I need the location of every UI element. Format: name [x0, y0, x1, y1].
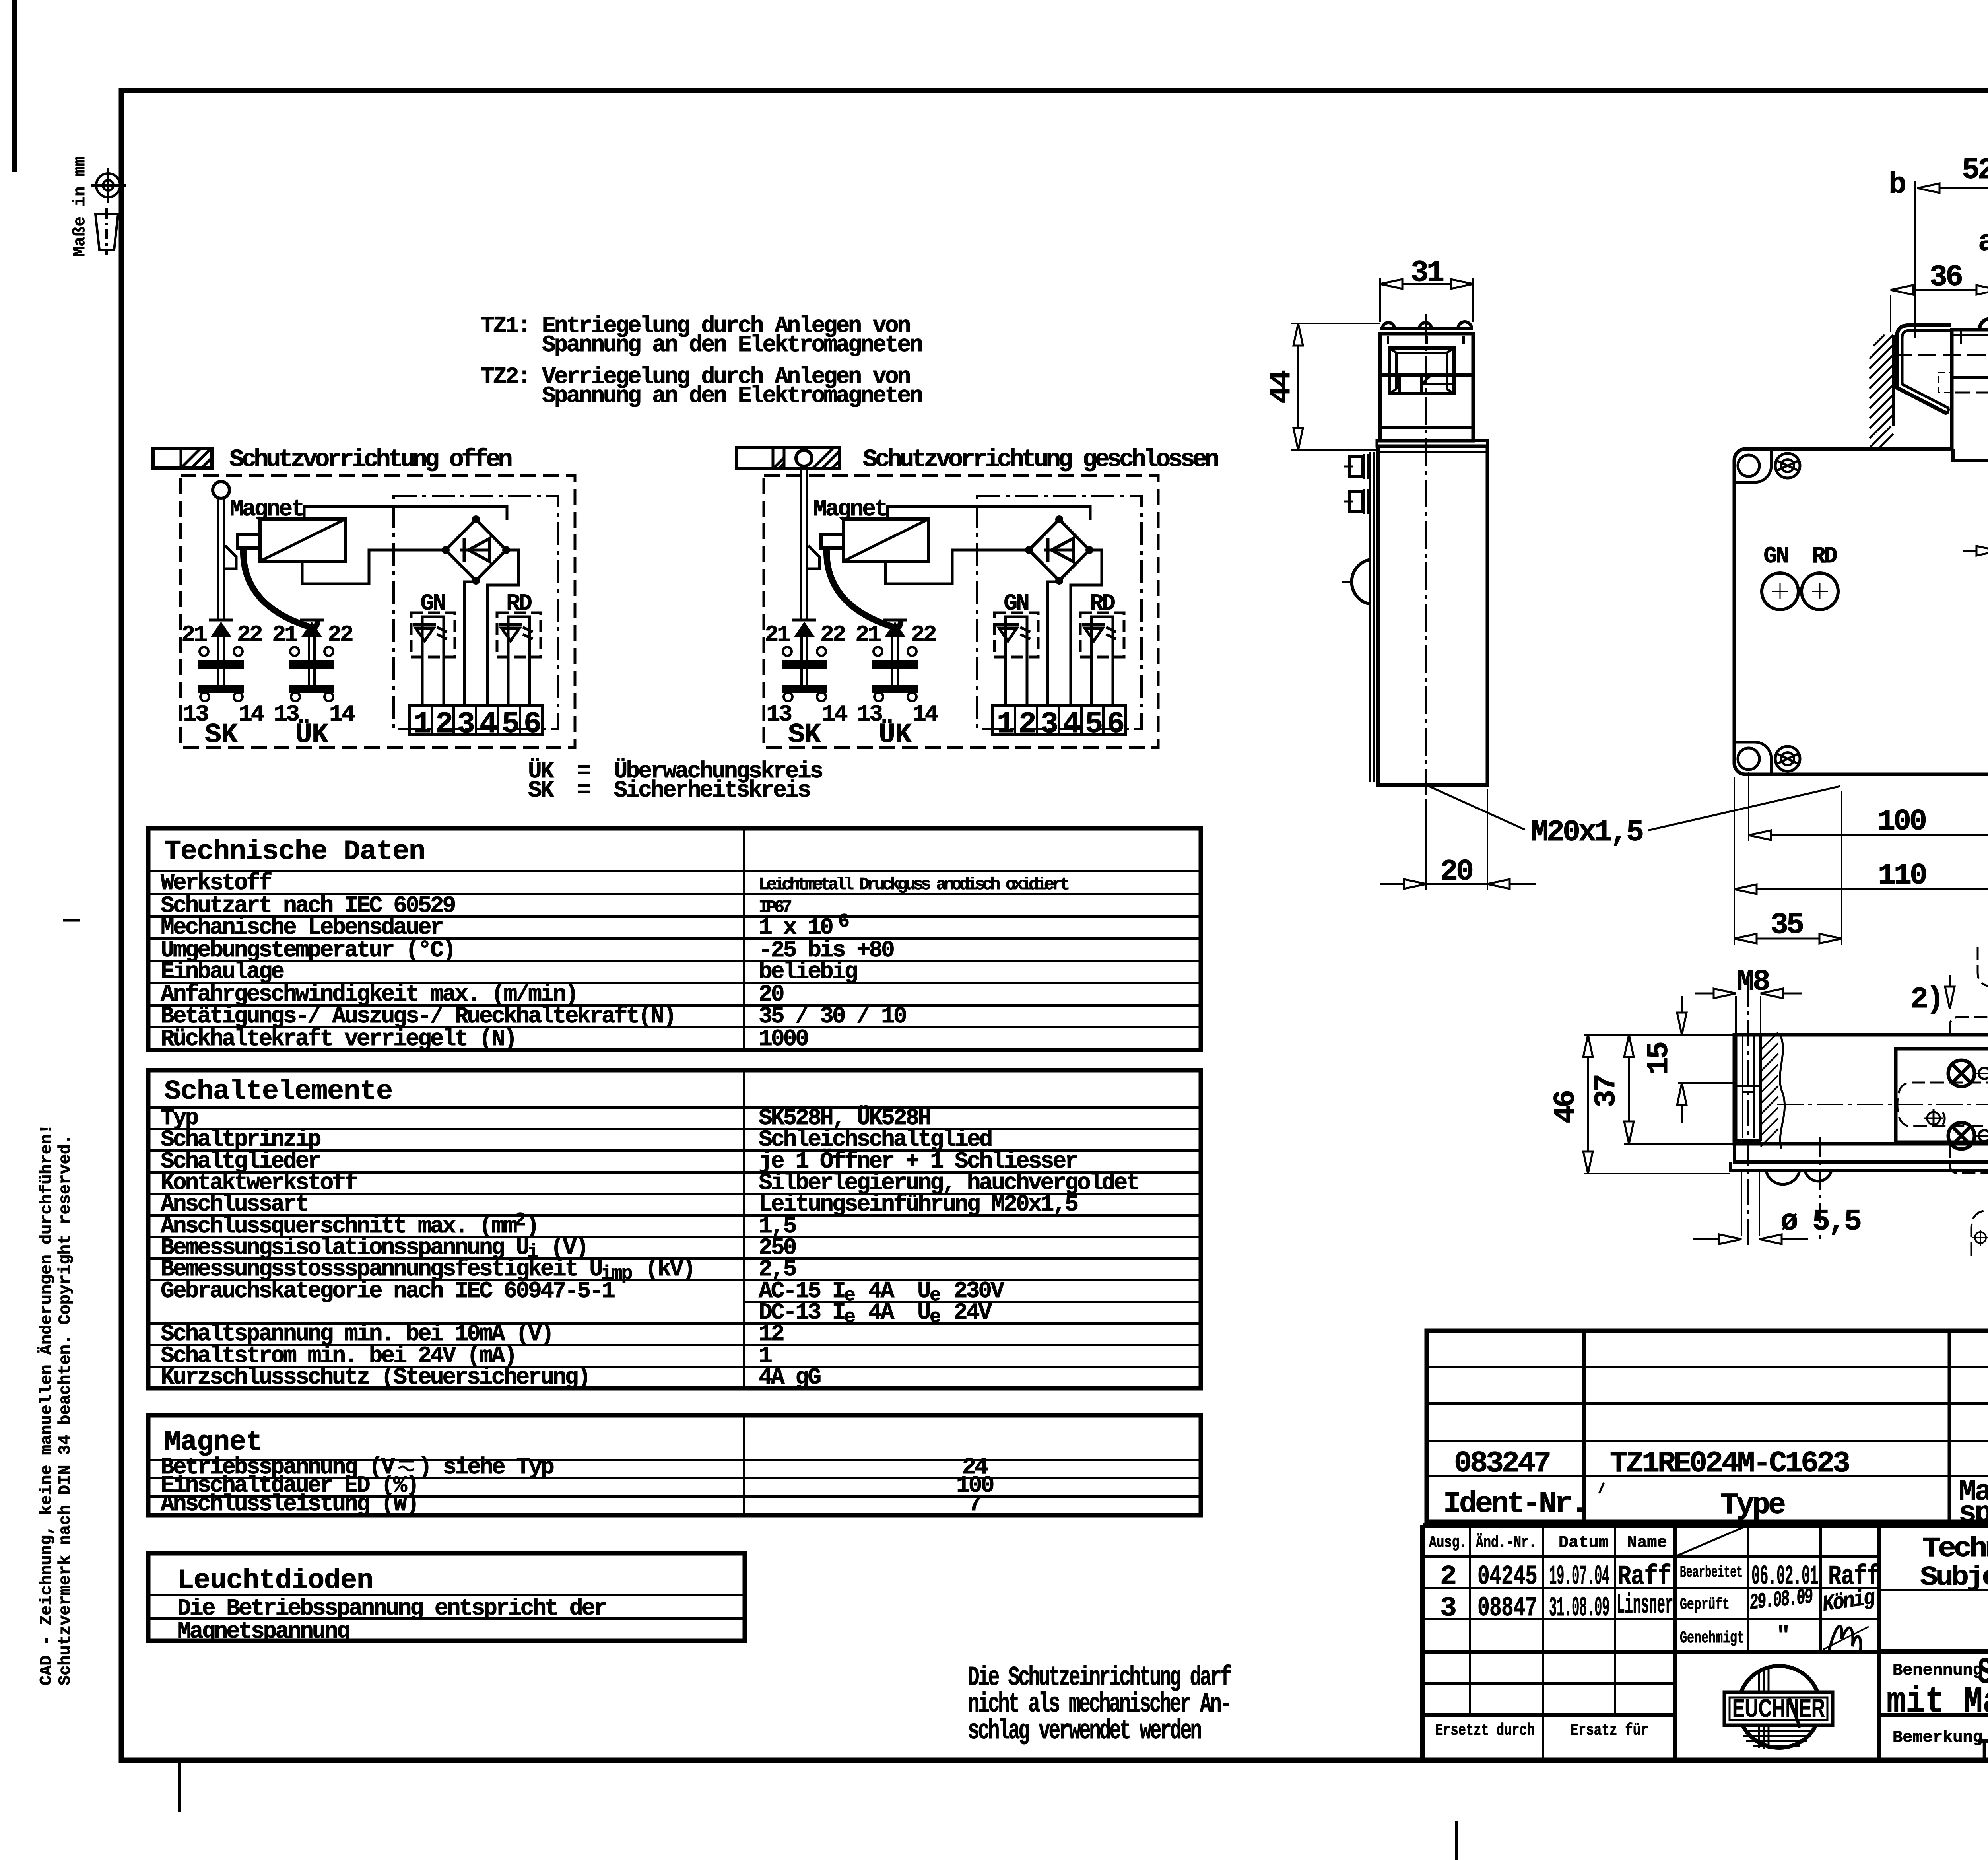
- svg-text:Type: Type: [1720, 1489, 1785, 1522]
- svg-text:M20x1,5: M20x1,5: [1531, 816, 1643, 849]
- svg-text:TZ.RE...M-C1623: TZ.RE...M-C1623: [1978, 1735, 1988, 1767]
- svg-text:46: 46: [1549, 1091, 1583, 1123]
- svg-text:Magnet: Magnet: [164, 1427, 262, 1458]
- svg-text:IP67: IP67: [759, 898, 791, 917]
- svg-text:52: 52: [1962, 154, 1988, 187]
- svg-text:SK = Sicherheitskreis: SK = Sicherheitskreis: [528, 778, 810, 804]
- svg-text:GN: GN: [1763, 544, 1788, 569]
- svg-text:3: 3: [1440, 1593, 1456, 1624]
- svg-text:1 x 10: 1 x 10: [759, 915, 833, 941]
- svg-text:Ident-Nr.: Ident-Nr.: [1443, 1487, 1586, 1521]
- svg-text:15: 15: [1642, 1042, 1676, 1075]
- svg-text:a: a: [1978, 225, 1988, 259]
- svg-text:RD: RD: [1811, 544, 1837, 569]
- svg-text:) siehe Typ: ) siehe Typ: [418, 1455, 554, 1481]
- svg-text:Gebrauchskategorie nach IEC 60: Gebrauchskategorie nach IEC 60947-5-1: [161, 1279, 615, 1304]
- svg-text:083247: 083247: [1454, 1447, 1549, 1481]
- svg-text:Datum: Datum: [1559, 1533, 1609, 1552]
- svg-text:Ersetzt durch: Ersetzt durch: [1435, 1721, 1535, 1740]
- svg-text:Name: Name: [1627, 1533, 1667, 1552]
- svg-text:Leuchtdioden: Leuchtdioden: [177, 1565, 373, 1597]
- svg-text:e: e: [930, 1306, 940, 1328]
- svg-text:Benennung: Benennung: [1893, 1661, 1983, 1680]
- svg-text:Änd.-Nr.: Änd.-Nr.: [1476, 1533, 1536, 1552]
- svg-text:4A U: 4A U: [856, 1300, 930, 1326]
- svg-text:2: 2: [1440, 1561, 1456, 1593]
- svg-text:Spannung an den Elektromagnete: Spannung an den Elektromagneten: [542, 332, 922, 358]
- svg-text:Ausg.: Ausg.: [1429, 1533, 1467, 1552]
- svg-text:Schutzvorrichtung geschlossen: Schutzvorrichtung geschlossen: [863, 445, 1218, 474]
- svg-text:Genehmigt: Genehmigt: [1680, 1629, 1744, 1648]
- svg-text:Raff: Raff: [1617, 1561, 1671, 1593]
- svg-text:Anschlussleistung (W): Anschlussleistung (W): [161, 1492, 418, 1518]
- svg-text:e: e: [930, 1285, 940, 1306]
- svg-text:04245: 04245: [1477, 1561, 1537, 1593]
- svg-text:Subject to technical modificat: Subject to technical modifications: [1920, 1562, 1988, 1594]
- svg-text:Spannung an den Elektromagnete: Spannung an den Elektromagneten: [542, 383, 922, 409]
- svg-text:7: 7: [968, 1492, 980, 1518]
- svg-text:Technische Daten: Technische Daten: [164, 836, 425, 868]
- svg-text:37: 37: [1590, 1076, 1623, 1108]
- svg-text:Schaltelemente: Schaltelemente: [164, 1076, 392, 1108]
- svg-text:Magnetspannung: Magnetspannung: [177, 1619, 349, 1645]
- svg-text:100: 100: [1877, 805, 1926, 839]
- svg-text:CAD - Zeichnung, keine manuell: CAD - Zeichnung, keine manuellen Änderun…: [37, 1124, 56, 1685]
- svg-text:Werkstoff: Werkstoff: [161, 871, 271, 896]
- svg-text:2): 2): [1910, 983, 1942, 1016]
- svg-text:Bemerkung: Bemerkung: [1893, 1728, 1983, 1747]
- svg-text:schlag verwendet werden: schlag verwendet werden: [968, 1716, 1201, 1747]
- svg-text:Einbaulage: Einbaulage: [161, 959, 283, 985]
- svg-text:08847: 08847: [1477, 1593, 1537, 1624]
- svg-text:4A gG: 4A gG: [759, 1365, 820, 1391]
- svg-text:Mechanische Lebensdauer: Mechanische Lebensdauer: [161, 915, 443, 941]
- svg-text:Leichtmetall Druckguss anodisc: Leichtmetall Druckguss anodisch oxidiert: [759, 875, 1069, 895]
- svg-text:b: b: [1889, 168, 1905, 202]
- svg-text:Maße in mm: Maße in mm: [70, 156, 89, 257]
- svg-text:Geprüft: Geprüft: [1680, 1595, 1730, 1614]
- svg-text:110: 110: [1878, 859, 1926, 893]
- svg-text:44: 44: [1265, 371, 1299, 404]
- svg-text:Betätigungs-/ Auszugs-/ Rueckh: Betätigungs-/ Auszugs-/ Rueckhaltekraft(…: [161, 1004, 675, 1030]
- svg-text:(kV): (kV): [633, 1257, 694, 1283]
- svg-text:Rückhaltekraft verriegelt (N): Rückhaltekraft verriegelt (N): [161, 1026, 516, 1052]
- svg-text:19.07.04: 19.07.04: [1549, 1561, 1609, 1593]
- svg-text:1000: 1000: [759, 1026, 808, 1052]
- svg-text:2: 2: [514, 1210, 525, 1231]
- svg-text:TZ1RE024M-C1623: TZ1RE024M-C1623: [1610, 1447, 1849, 1481]
- svg-text:31.08.09: 31.08.09: [1549, 1593, 1609, 1624]
- svg-text:Technische Änderungen vorbehal: Technische Änderungen vorbehalten: [1922, 1533, 1988, 1565]
- svg-text:35: 35: [1771, 908, 1803, 942]
- svg-text:24V: 24V: [942, 1300, 992, 1326]
- svg-text:mit Magnetverriegelung: mit Magnetverriegelung: [1887, 1681, 1988, 1724]
- svg-text:Ersatz für: Ersatz für: [1571, 1721, 1648, 1740]
- svg-text:e: e: [844, 1285, 855, 1306]
- svg-text:": ": [1776, 1623, 1789, 1649]
- svg-text:e: e: [844, 1306, 855, 1328]
- svg-text:Die Betriebsspannung entsprich: Die Betriebsspannung entspricht der: [177, 1596, 606, 1622]
- svg-text:Bearbeitet: Bearbeitet: [1680, 1563, 1743, 1582]
- svg-text:Schutzvermerk nach DIN 34 beac: Schutzvermerk nach DIN 34 beachten. Copy…: [56, 1134, 75, 1685]
- svg-text:ø 5,5: ø 5,5: [1780, 1205, 1861, 1239]
- svg-text:Linsner: Linsner: [1617, 1590, 1673, 1621]
- svg-text:EUCHNER: EUCHNER: [1732, 1694, 1825, 1722]
- svg-text:Leitungseinführung M20x1,5: Leitungseinführung M20x1,5: [759, 1192, 1077, 1218]
- svg-text:beliebig: beliebig: [759, 959, 857, 985]
- svg-text:6: 6: [838, 911, 849, 933]
- svg-text:Schutzvorrichtung offen: Schutzvorrichtung offen: [229, 445, 512, 474]
- svg-text:Kurzschlussschutz (Steuersiche: Kurzschlussschutz (Steuersicherung): [161, 1365, 589, 1391]
- svg-text:35 / 30 / 10: 35 / 30 / 10: [759, 1004, 906, 1030]
